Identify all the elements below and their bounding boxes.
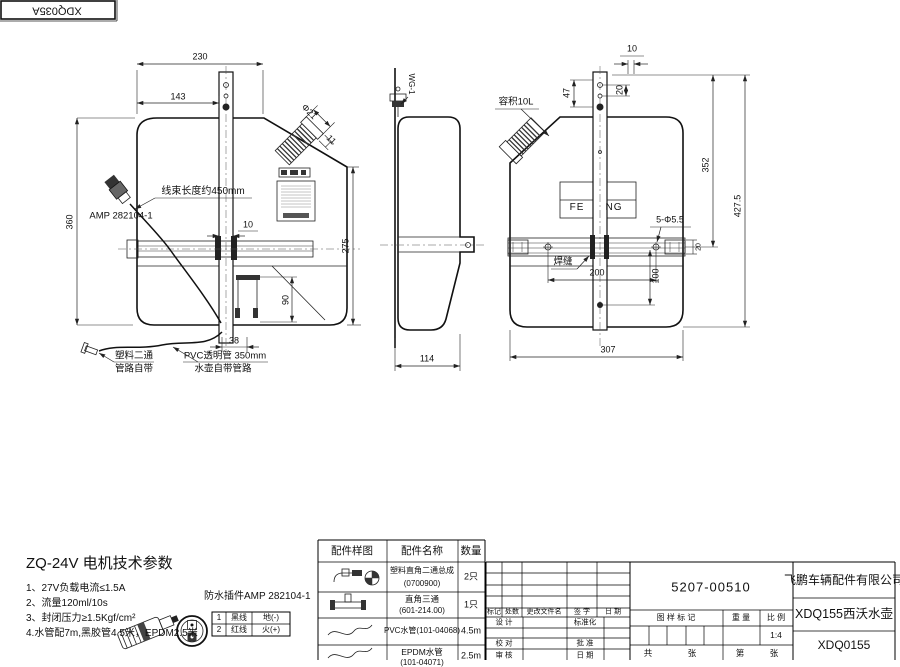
filler-neck-rear bbox=[499, 116, 546, 163]
dim-20: 20 bbox=[616, 85, 625, 95]
product-code: XDQ0155 bbox=[818, 639, 871, 651]
pump-model-label: WG-1 bbox=[407, 74, 415, 95]
label-sheet2: 张 bbox=[770, 649, 779, 658]
parts-header-qty: 数量 bbox=[461, 546, 482, 557]
part3-qty: 4.5m bbox=[461, 627, 481, 636]
part2-name2: (601-214.00) bbox=[399, 607, 445, 615]
part3-name1: PVC水管(101-04068) bbox=[384, 627, 460, 635]
fitting-note-line1: 塑料二通 bbox=[115, 351, 153, 361]
pin1-polarity: 地(-) bbox=[263, 614, 279, 622]
parts-header-sample: 配件样图 bbox=[331, 546, 373, 557]
brand-text-left: FE bbox=[570, 203, 585, 213]
label-design: 设 计 bbox=[495, 618, 512, 626]
pin1-wire: 黑线 bbox=[231, 614, 247, 622]
part4-name1: EPDM水管 bbox=[401, 648, 443, 657]
harness-note: 线束长度约450mm bbox=[161, 187, 244, 197]
label-file: 更改文件名 bbox=[527, 609, 562, 616]
part1-name1: 塑料直角二通总成 bbox=[390, 567, 454, 575]
dim-38: 38 bbox=[229, 337, 239, 346]
motor-spec-item-4: 4.水管配7m,黑胶管4.5米，EPDM2.5米 bbox=[26, 629, 198, 639]
label-sheet1: 张 bbox=[688, 649, 697, 658]
pin1-no: 1 bbox=[217, 614, 221, 622]
label-drawing-mark: 图 样 标 记 bbox=[657, 614, 696, 622]
label-review: 审 核 bbox=[495, 651, 512, 659]
pin2-wire: 红线 bbox=[231, 626, 247, 634]
label-check: 校 对 bbox=[495, 639, 512, 647]
label-weight: 重 量 bbox=[732, 614, 750, 622]
pvc-note-line1: PVC透明管 350mm bbox=[184, 351, 266, 361]
label-date2: 日 期 bbox=[576, 651, 593, 659]
label-page: 第 bbox=[736, 649, 745, 658]
label-standard: 标准化 bbox=[574, 618, 597, 626]
label-scale: 比 例 bbox=[767, 614, 785, 622]
label-sign: 签 字 bbox=[574, 609, 590, 616]
part2-name1: 直角三通 bbox=[405, 595, 439, 604]
part1-qty: 2只 bbox=[464, 573, 478, 582]
part2-qty: 1只 bbox=[464, 601, 478, 610]
pin2-polarity: 火(+) bbox=[262, 626, 280, 634]
label-date: 日 期 bbox=[605, 609, 621, 616]
part4-qty: 2.5m bbox=[461, 652, 481, 661]
dim-10-front: 10 bbox=[243, 221, 253, 230]
dim-10-rear: 10 bbox=[627, 45, 637, 54]
dim-114: 114 bbox=[420, 355, 434, 364]
dim-100: 100 bbox=[652, 268, 661, 283]
dim-20b: 20 bbox=[696, 243, 703, 251]
brand-text-right: NG bbox=[606, 203, 623, 213]
side-view bbox=[380, 68, 487, 371]
dim-200: 200 bbox=[589, 269, 604, 278]
label-count: 处数 bbox=[505, 609, 519, 616]
dim-90: 90 bbox=[282, 295, 291, 305]
part4-name2: (101-04071) bbox=[400, 659, 444, 667]
harness-connector bbox=[104, 174, 132, 205]
corner-stamp-code: XDQ035A bbox=[32, 5, 82, 16]
company-name: 飞鹏车辆配件有限公司 bbox=[784, 574, 900, 586]
dim-427-5: 427.5 bbox=[734, 195, 743, 218]
label-mark: 标记 bbox=[487, 609, 501, 616]
motor-specs-title: ZQ-24V 电机技术参数 bbox=[26, 556, 173, 571]
motor-spec-item-2: 2、流量120ml/10s bbox=[26, 599, 108, 609]
parts-header-name: 配件名称 bbox=[401, 546, 443, 557]
product-name: XDQ155西沃水壶 bbox=[795, 608, 893, 621]
fitting-note-line2: 管路自带 bbox=[115, 364, 153, 374]
dim-360: 360 bbox=[66, 214, 75, 229]
holes-note: 5-Φ5.5 bbox=[656, 216, 684, 225]
dim-143: 143 bbox=[170, 93, 185, 102]
pvc-note-line2: 水壶自带管路 bbox=[194, 364, 251, 374]
parts-table-grid bbox=[318, 540, 485, 660]
dim-275: 275 bbox=[342, 238, 351, 253]
pin2-no: 2 bbox=[217, 626, 221, 634]
motor-spec-item-1: 1、27V负载电流≤1.5A bbox=[26, 584, 125, 594]
dim-307: 307 bbox=[600, 346, 615, 355]
amp-connector-label: AMP 282104-1 bbox=[89, 211, 152, 221]
weld-note: 焊缝 bbox=[553, 257, 572, 267]
dim-352: 352 bbox=[702, 157, 711, 172]
part1-name2: (0700900) bbox=[404, 580, 440, 588]
drawing-number: 5207-00510 bbox=[671, 581, 750, 594]
product-sticker bbox=[277, 168, 315, 221]
scale-value: 1:4 bbox=[770, 631, 782, 640]
motor-spec-item-3: 3、封闭压力≥1.5Kgf/cm² bbox=[26, 614, 135, 624]
label-approve: 批 准 bbox=[576, 639, 593, 647]
two-way-fitting bbox=[81, 343, 99, 358]
dim-47: 47 bbox=[563, 88, 572, 98]
dim-230: 230 bbox=[192, 53, 207, 62]
waterproof-connector-note: 防水插件AMP 282104-1 bbox=[204, 592, 311, 602]
engineering-drawing-sheet: XDQ035A 230 143 360 275 10 Φ21 11 90 38 … bbox=[0, 0, 900, 660]
capacity-note: 容积10L bbox=[499, 97, 534, 107]
label-total: 共 bbox=[644, 649, 653, 658]
